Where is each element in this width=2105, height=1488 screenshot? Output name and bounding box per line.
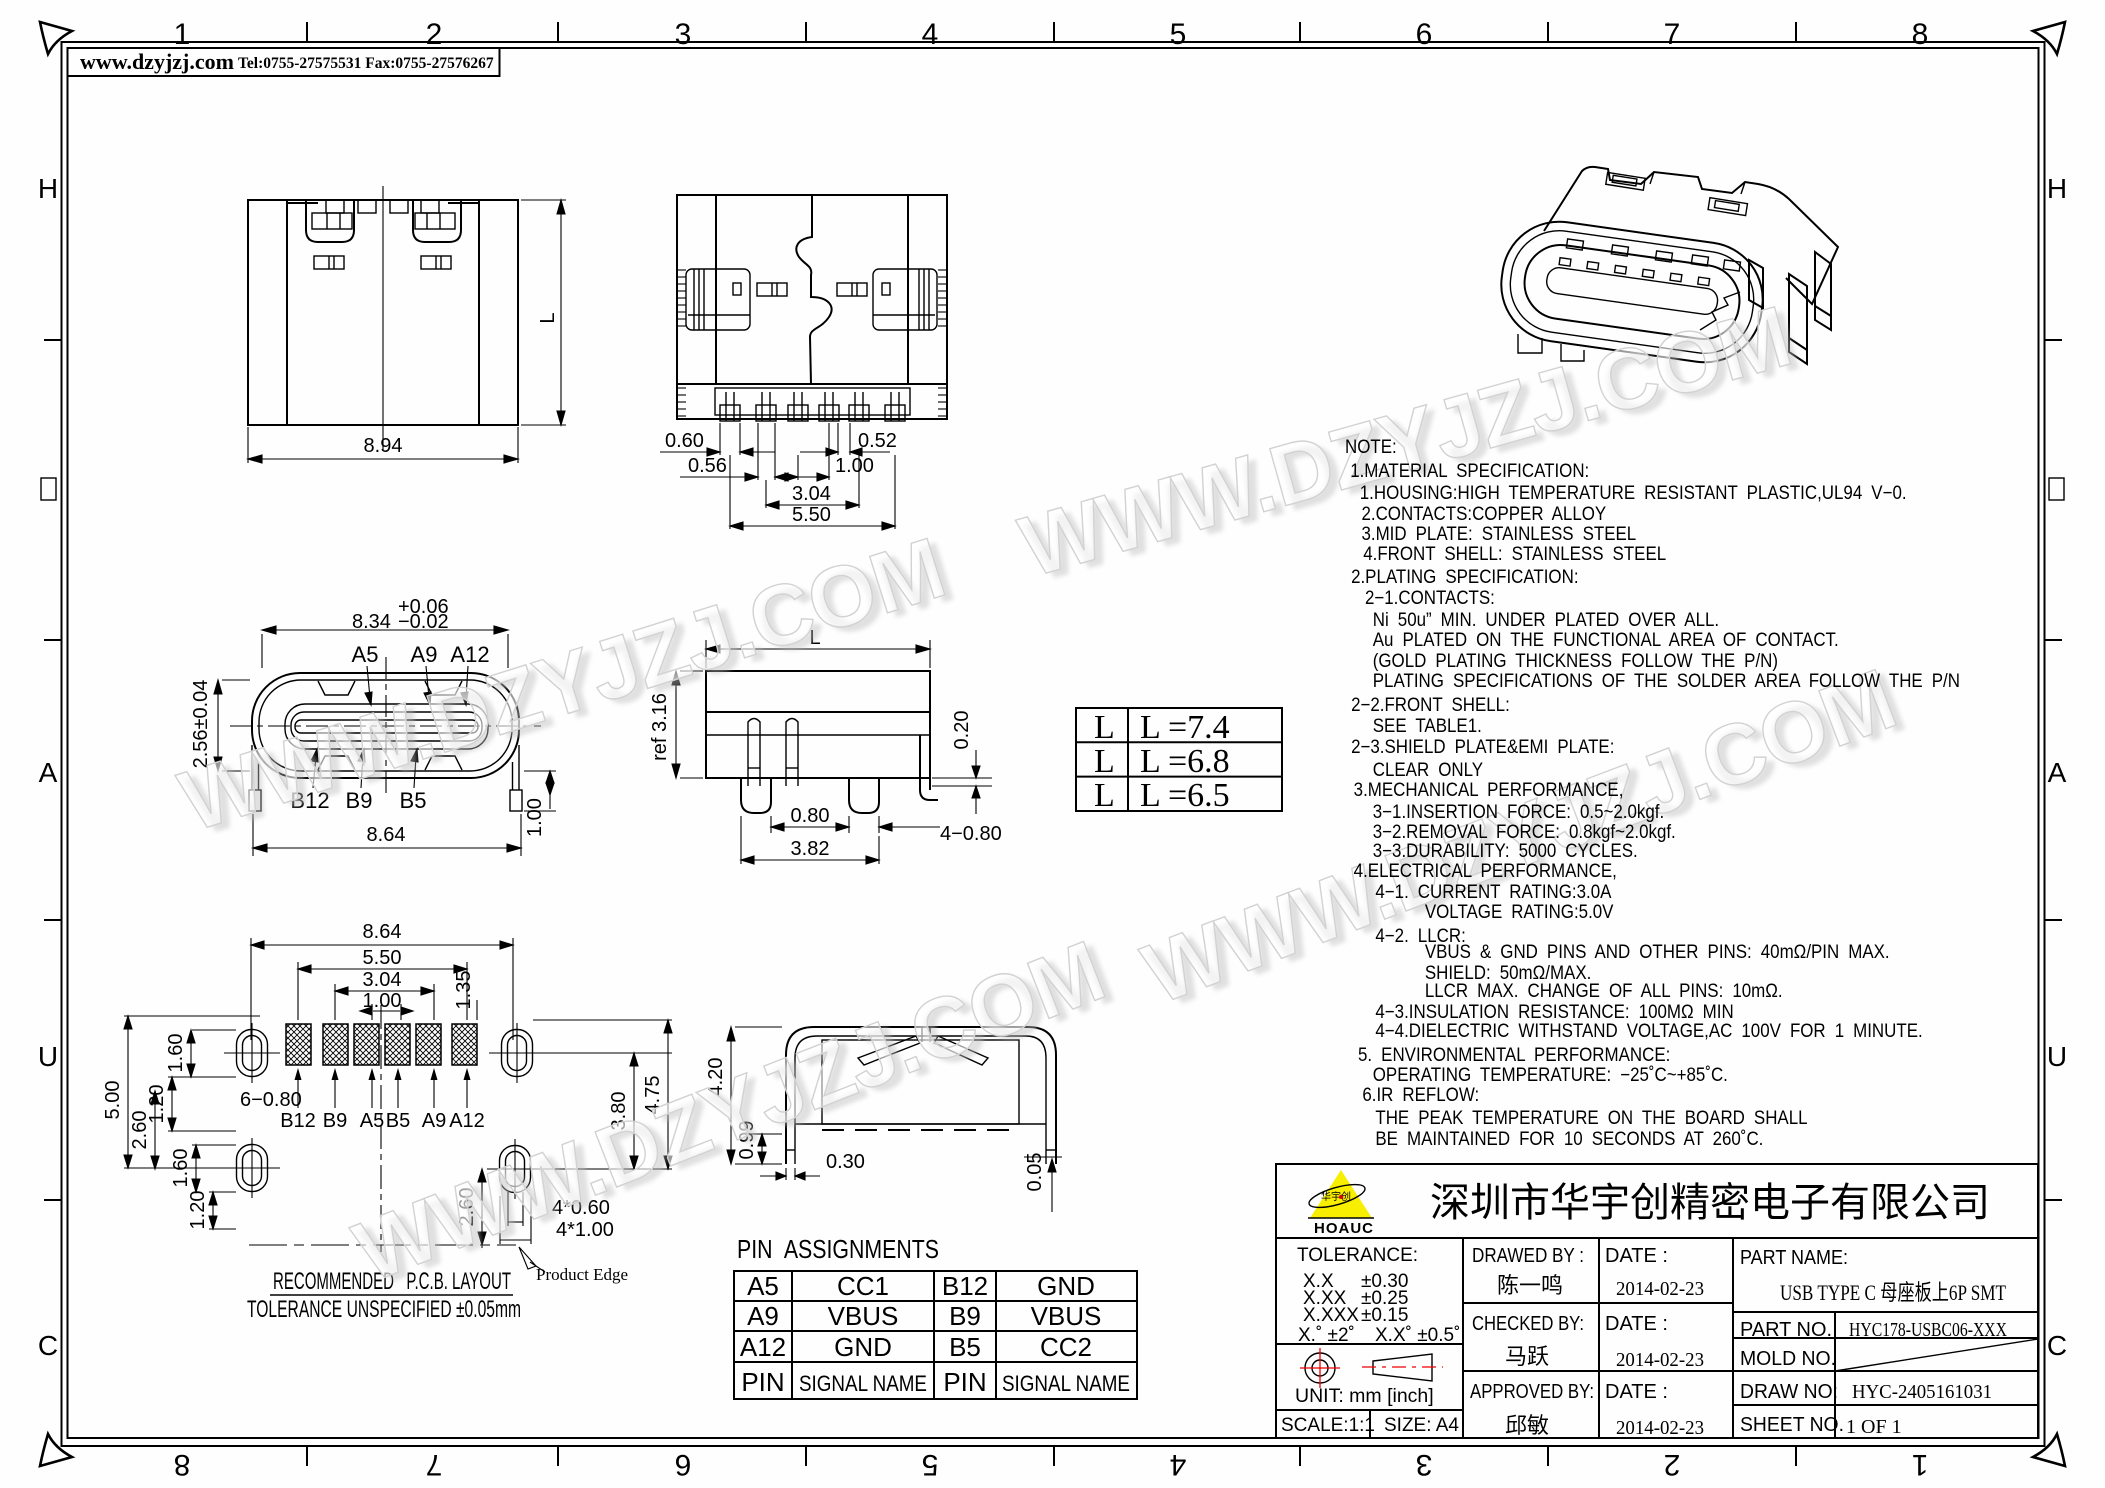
svg-text:PLATING SPECIFICATIONS OF THE: PLATING SPECIFICATIONS OF THE SOLDER ARE… [1373,669,1960,691]
svg-text:THE PEAK TEMPERATURE ON THE BO: THE PEAK TEMPERATURE ON THE BOARD SHALL [1375,1106,1807,1128]
svg-text:X.X˚ ±0.5˚: X.X˚ ±0.5˚ [1375,1325,1460,1346]
svg-text:GND: GND [834,1332,892,1362]
svg-text:1.00: 1.00 [524,798,546,837]
svg-text:7: 7 [1664,18,1681,51]
svg-text:5.50: 5.50 [792,504,831,526]
svg-text:2014-02-23: 2014-02-23 [1616,1278,1704,1300]
svg-text:A5: A5 [747,1271,779,1301]
svg-text:CHECKED BY:: CHECKED BY: [1472,1313,1584,1335]
svg-text:1.HOUSING:HIGH TEMPERATURE RES: 1.HOUSING:HIGH TEMPERATURE RESISTANT PLA… [1360,481,1907,503]
svg-text:−0.02: −0.02 [398,611,449,633]
svg-text:2: 2 [1664,1448,1681,1481]
svg-text:8.64: 8.64 [367,824,406,846]
svg-text:4−4.DIELECTRIC WITHSTAND VOLTA: 4−4.DIELECTRIC WITHSTAND VOLTAGE,AC 100V… [1375,1019,1922,1041]
svg-text:8: 8 [1912,18,1929,51]
svg-text:VBUS: VBUS [1031,1301,1102,1331]
svg-text:A12: A12 [449,1110,485,1132]
svg-text:L =6.5: L =6.5 [1140,777,1230,814]
svg-text:U: U [2047,1041,2067,1072]
svg-text:马跃: 马跃 [1505,1344,1549,1369]
svg-text:8.34: 8.34 [352,611,391,633]
svg-text:6−0.80: 6−0.80 [240,1089,302,1111]
svg-text:Au PLATED ON THE FUNCTIONAL AR: Au PLATED ON THE FUNCTIONAL AREA OF CONT… [1373,628,1839,650]
svg-text:C: C [2047,1330,2067,1361]
svg-text:A9: A9 [422,1110,446,1132]
svg-text:SIZE: A4: SIZE: A4 [1384,1415,1459,1436]
svg-text:8: 8 [174,1448,191,1481]
svg-text:0.05: 0.05 [1024,1153,1046,1192]
svg-text:HYC-2405161031: HYC-2405161031 [1852,1381,1992,1403]
svg-text:DRAWED BY :: DRAWED BY : [1472,1245,1584,1267]
svg-text:L: L [1094,743,1115,780]
svg-text:HYC178-USBC06-XXX: HYC178-USBC06-XXX [1849,1319,2007,1341]
svg-text:H: H [38,173,58,204]
svg-text:Tel:0755-27575531 Fax:0755-27: Tel:0755-27575531 Fax:0755-27576267 [238,55,494,72]
svg-text:5.50: 5.50 [363,947,402,969]
svg-text:PART NAME:: PART NAME: [1740,1247,1848,1269]
svg-text:0.60: 0.60 [665,430,704,452]
svg-text:8.94: 8.94 [364,435,403,457]
svg-text:TOLERANCE:: TOLERANCE: [1297,1245,1418,1266]
svg-text:B12: B12 [280,1110,316,1132]
svg-text:2−1.CONTACTS:: 2−1.CONTACTS: [1365,586,1495,608]
svg-text:1.60: 1.60 [165,1034,187,1073]
svg-text:5: 5 [922,1448,939,1481]
svg-text:C: C [38,1330,58,1361]
svg-text:1.00: 1.00 [835,455,874,477]
svg-text:5: 5 [1170,18,1187,51]
svg-text:2.PLATING SPECIFICATION:: 2.PLATING SPECIFICATION: [1351,565,1578,587]
svg-text:3.04: 3.04 [363,969,402,991]
svg-text:CC1: CC1 [837,1271,889,1301]
svg-text:SHEET NO.: SHEET NO. [1740,1414,1844,1436]
svg-text:SIGNAL NAME: SIGNAL NAME [799,1371,927,1396]
svg-text:2: 2 [426,18,443,51]
svg-text:3: 3 [1416,1448,1433,1481]
svg-text:VBUS: VBUS [828,1301,899,1331]
svg-text:L =6.8: L =6.8 [1140,743,1230,780]
svg-text:PIN: PIN [741,1367,784,1397]
svg-text:MOLD NO.: MOLD NO. [1740,1348,1836,1370]
svg-text:A9: A9 [411,642,438,667]
svg-text:LLCR MAX. CHANGE OF ALL PINS:: LLCR MAX. CHANGE OF ALL PINS: 10mΩ. [1425,979,1783,1001]
svg-text:6: 6 [675,1448,692,1481]
svg-text:Product Edge: Product Edge [536,1265,628,1284]
svg-text:X.˚ ±2˚: X.˚ ±2˚ [1298,1325,1355,1346]
svg-text:L: L [537,312,559,323]
svg-text:华宇创: 华宇创 [1321,1190,1351,1203]
svg-text:PIN: PIN [943,1367,986,1397]
svg-text:8.64: 8.64 [363,921,402,943]
svg-text:L: L [1094,709,1115,746]
svg-text:SCALE:1:1: SCALE:1:1 [1281,1415,1375,1436]
svg-text:U: U [38,1041,58,1072]
svg-text:3.MECHANICAL PERFORMANCE,: 3.MECHANICAL PERFORMANCE, [1354,778,1624,800]
svg-text:1.MATERIAL SPECIFICATION:: 1.MATERIAL SPECIFICATION: [1350,459,1589,481]
svg-text:X.XXX: X.XXX [1303,1305,1359,1326]
svg-text:A5: A5 [352,642,379,667]
svg-text:±0.15: ±0.15 [1361,1305,1408,1326]
svg-text:SIGNAL NAME: SIGNAL NAME [1002,1371,1130,1396]
svg-text:6.IR REFLOW:: 6.IR REFLOW: [1362,1083,1479,1105]
svg-text:邱敏: 邱敏 [1505,1413,1549,1438]
svg-text:B9: B9 [949,1301,981,1331]
svg-text:DRAW NO:: DRAW NO: [1740,1381,1838,1403]
svg-text:2−2.FRONT SHELL:: 2−2.FRONT SHELL: [1351,693,1510,715]
svg-text:UNIT: mm [inch]: UNIT: mm [inch] [1295,1385,1434,1407]
svg-text:A9: A9 [747,1301,779,1331]
svg-text:BE MAINTAINED FOR 10 SECONDS A: BE MAINTAINED FOR 10 SECONDS AT 260˚C. [1375,1127,1763,1149]
svg-text:2014-02-23: 2014-02-23 [1616,1417,1704,1439]
svg-text:HOAUC: HOAUC [1314,1220,1374,1237]
svg-text:A: A [2048,757,2067,788]
svg-text:4: 4 [922,18,939,51]
svg-text:2014-02-23: 2014-02-23 [1616,1349,1704,1371]
svg-text:0.30: 0.30 [826,1151,865,1173]
svg-text:1.35: 1.35 [453,971,475,1010]
svg-text:USB TYPE C 母座板上6P SMT: USB TYPE C 母座板上6P SMT [1780,1280,2006,1305]
svg-text:1: 1 [174,18,191,51]
svg-text:A: A [39,757,58,788]
svg-text:DATE :: DATE : [1605,1313,1668,1335]
svg-text:VOLTAGE RATING:5.0V: VOLTAGE RATING:5.0V [1425,900,1614,922]
svg-text:深圳市华宇创精密电子有限公司: 深圳市华宇创精密电子有限公司 [1430,1180,1990,1225]
svg-text:B12: B12 [942,1271,988,1301]
svg-text:www.dzyjzj.com: www.dzyjzj.com [80,49,234,74]
svg-text:0.56: 0.56 [688,455,727,477]
svg-text:PART NO.: PART NO. [1740,1319,1832,1341]
svg-text:B5: B5 [386,1110,410,1132]
svg-text:APPROVED BY:: APPROVED BY: [1470,1381,1594,1403]
svg-text:1.20: 1.20 [146,1085,168,1124]
svg-text:L: L [1094,777,1115,814]
svg-text:CC2: CC2 [1040,1332,1092,1362]
svg-text:DATE :: DATE : [1605,1245,1668,1267]
svg-text:B5: B5 [949,1332,981,1362]
svg-text:4.ELECTRICAL PERFORMANCE,: 4.ELECTRICAL PERFORMANCE, [1354,859,1617,881]
svg-text:0.52: 0.52 [858,430,897,452]
svg-text:VBUS & GND PINS AND OTHER PINS: VBUS & GND PINS AND OTHER PINS: 40mΩ/PIN… [1425,940,1890,962]
svg-text:SEE TABLE1.: SEE TABLE1. [1373,714,1482,736]
svg-text:3: 3 [675,18,692,51]
svg-text:A12: A12 [740,1332,786,1362]
svg-text:4.FRONT SHELL: STAINLESS STEEL: 4.FRONT SHELL: STAINLESS STEEL [1363,542,1666,564]
svg-text:NOTE:: NOTE: [1345,435,1397,457]
svg-text:4: 4 [1170,1448,1187,1481]
svg-text:1: 1 [1912,1448,1929,1481]
svg-text:A5: A5 [360,1110,384,1132]
svg-text:GND: GND [1037,1271,1095,1301]
svg-text:2−3.SHIELD PLATE&EMI PLATE:: 2−3.SHIELD PLATE&EMI PLATE: [1351,735,1614,757]
svg-text:0.20: 0.20 [951,711,973,750]
svg-text:3.04: 3.04 [792,483,831,505]
svg-text:陈一鸣: 陈一鸣 [1497,1273,1563,1298]
svg-text:B9: B9 [323,1110,347,1132]
svg-text:1.60: 1.60 [170,1149,192,1188]
svg-text:4−0.80: 4−0.80 [940,823,1002,845]
svg-text:5.00: 5.00 [102,1081,124,1120]
svg-text:PIN ASSIGNMENTS: PIN ASSIGNMENTS [737,1234,939,1264]
svg-text:DATE :: DATE : [1605,1381,1668,1403]
svg-text:0.80: 0.80 [791,805,830,827]
svg-text:H: H [2047,173,2067,204]
svg-text:3.82: 3.82 [791,838,830,860]
svg-text:L =7.4: L =7.4 [1140,709,1230,746]
svg-text:1.20: 1.20 [187,1191,209,1230]
svg-text:1 OF 1: 1 OF 1 [1846,1416,1902,1438]
svg-text:6: 6 [1416,18,1433,51]
svg-text:7: 7 [426,1448,443,1481]
svg-text:1.00: 1.00 [363,990,402,1012]
